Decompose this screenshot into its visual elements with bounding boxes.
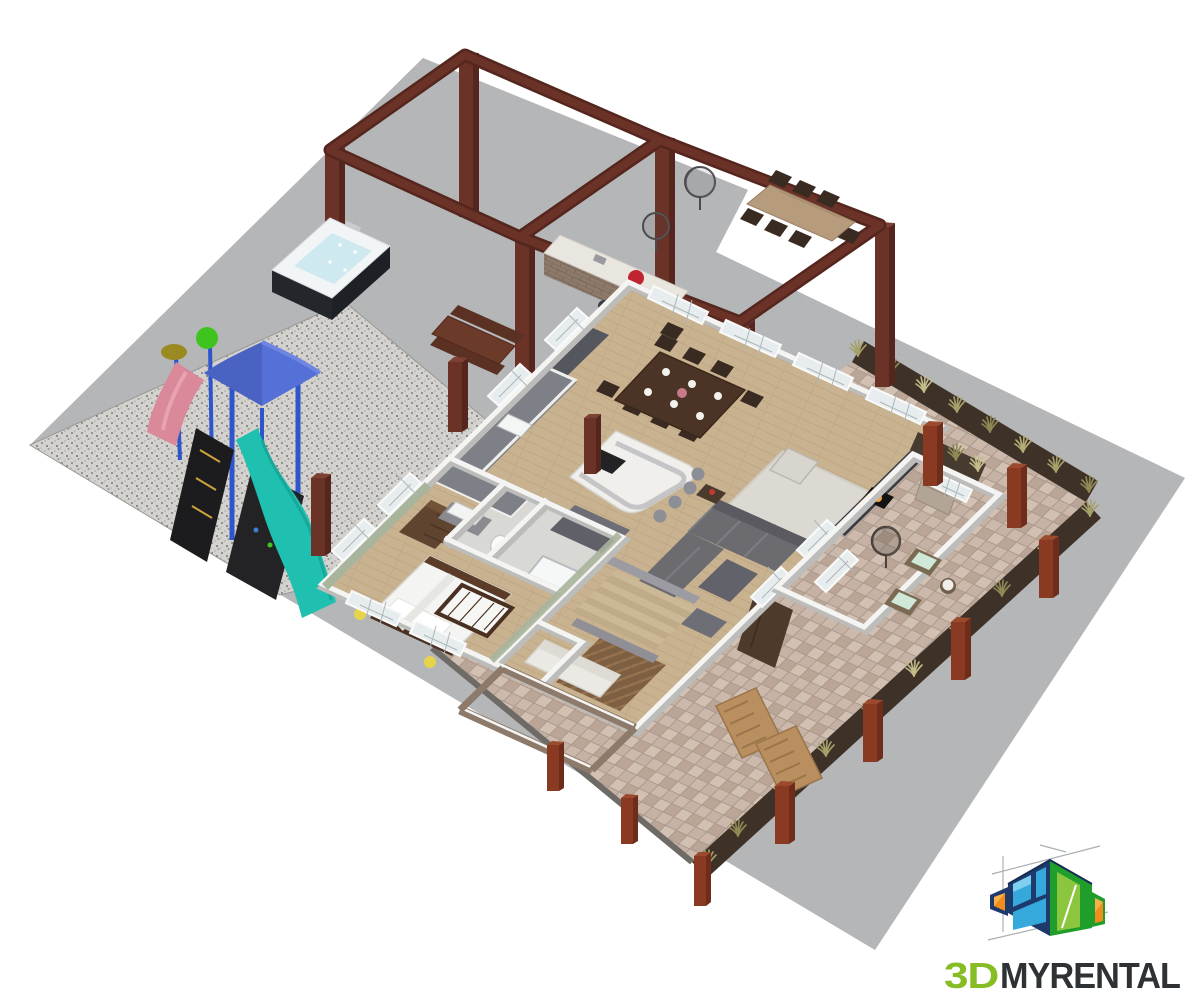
island-stool (692, 468, 705, 481)
island-stool (654, 510, 667, 523)
corten-post (1007, 463, 1027, 528)
pergola-post (459, 52, 479, 217)
wood-post (584, 414, 601, 474)
corten-post (621, 794, 638, 844)
brand-logo: 3D MYRENTAL (944, 845, 1180, 996)
floorplan-render: 3D MYRENTAL (0, 0, 1200, 1002)
logo-text-3d: 3D (944, 955, 998, 996)
corten-post (694, 852, 711, 906)
centerpiece-flowers (677, 388, 687, 398)
play-ball-topper (196, 327, 218, 349)
island-stool (669, 496, 682, 509)
floorplan-canvas: 3D MYRENTAL (0, 0, 1200, 1002)
corten-post (951, 617, 971, 680)
corten-post (547, 741, 564, 791)
corten-post (1039, 535, 1059, 598)
wood-post (448, 357, 468, 432)
pergola-post (875, 222, 895, 387)
corten-post (863, 699, 883, 762)
play-disc-topper (161, 344, 187, 360)
wood-post (311, 473, 331, 556)
logo-building-icon (990, 860, 1105, 936)
island-stool (684, 482, 697, 495)
bedside-lamp (424, 656, 436, 668)
corten-post (775, 781, 795, 844)
corten-post (923, 421, 943, 486)
logo-text-myrental: MYRENTAL (1000, 955, 1180, 996)
